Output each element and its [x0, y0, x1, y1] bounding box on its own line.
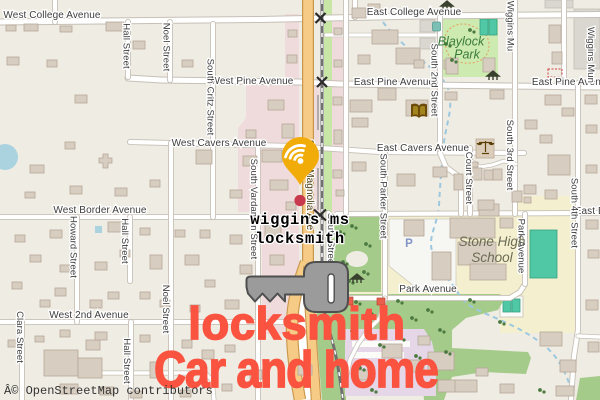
svg-text:Noel Street: Noel Street — [161, 23, 172, 72]
svg-text:South 4th Street: South 4th Street — [569, 178, 580, 249]
svg-text:West 2nd Avenue: West 2nd Avenue — [49, 310, 129, 321]
svg-text:East Cavers Avenue: East Cavers Avenue — [377, 143, 470, 154]
svg-text:Park: Park — [454, 48, 480, 62]
svg-text:Clara Street: Clara Street — [14, 311, 25, 363]
svg-text:Court Street: Court Street — [463, 152, 474, 205]
svg-text:West Cavers Avenue: West Cavers Avenue — [172, 138, 267, 149]
svg-text:Hall Street: Hall Street — [119, 218, 130, 264]
svg-text:South 2nd Street: South 2nd Street — [429, 44, 440, 117]
svg-text:Hall Street: Hall Street — [121, 338, 132, 384]
svg-text:Blaylock: Blaylock — [438, 35, 485, 49]
svg-text:South Critz Street: South Critz Street — [205, 59, 216, 136]
svg-text:locksmith: locksmith — [255, 230, 345, 248]
svg-text:School: School — [471, 250, 513, 265]
svg-text:Wiggins Mu: Wiggins Mu — [505, 1, 516, 52]
svg-text:West Border Avenue: West Border Avenue — [53, 205, 146, 216]
svg-text:East College Avenue: East College Avenue — [367, 7, 462, 18]
svg-text:West Pine Avenue: West Pine Avenue — [211, 76, 294, 87]
svg-text:Noel Street: Noel Street — [160, 285, 171, 334]
svg-text:West College Avenue: West College Avenue — [3, 10, 100, 21]
svg-text:wiggins ms: wiggins ms — [250, 211, 350, 229]
svg-text:Park Avenue: Park Avenue — [399, 284, 457, 295]
svg-text:Â© OpenStreetMap contributors: Â© OpenStreetMap contributors — [4, 383, 213, 398]
svg-text:Hall Street: Hall Street — [121, 23, 132, 69]
svg-text:South 3rd Street: South 3rd Street — [504, 120, 515, 191]
svg-text:Wiggins Mun: Wiggins Mun — [585, 27, 596, 83]
svg-text:South Parker Street: South Parker Street — [378, 153, 389, 239]
svg-text:Stone High: Stone High — [459, 234, 526, 249]
svg-text:Howard Street: Howard Street — [68, 216, 79, 278]
svg-text:East Pine Avenue: East Pine Avenue — [354, 77, 435, 88]
svg-text:P: P — [405, 238, 413, 250]
